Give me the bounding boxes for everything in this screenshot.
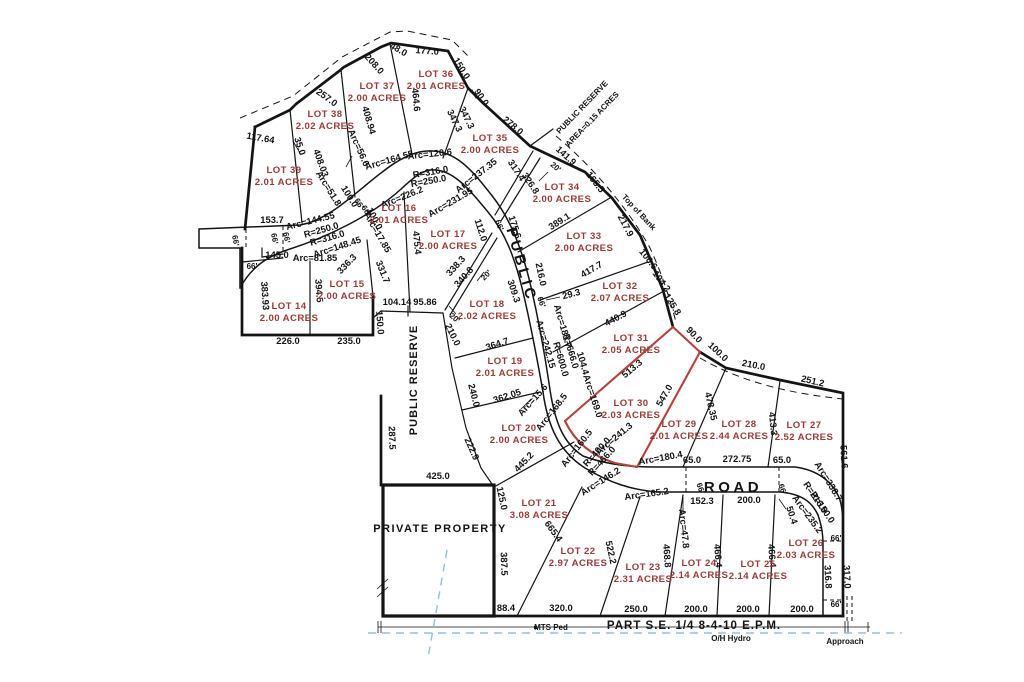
leader-line xyxy=(539,172,548,181)
reserve-wedge xyxy=(530,129,553,146)
dimension-label: 513.3 xyxy=(619,357,644,381)
lot-acres-label: 2.00 ACRES xyxy=(461,145,520,156)
dimension-label: 153.7 xyxy=(260,214,283,225)
plat-map-page: 48.0177.0208.0150.0257.0464.690.0347.334… xyxy=(0,0,1024,682)
lot-line xyxy=(367,240,373,296)
lot-number-label: LOT 17 xyxy=(431,229,466,240)
footer-label: O/H Hydro xyxy=(711,634,751,643)
dimension-label: 66' xyxy=(247,262,258,271)
lot-number-label: LOT 32 xyxy=(603,281,638,292)
lot-acres-label: 2.97 ACRES xyxy=(549,558,608,569)
dimension-label: 177.0 xyxy=(415,44,439,57)
dimension-label: 65.0 xyxy=(683,454,701,465)
footer-label: MTS Ped xyxy=(534,623,568,632)
dimension-label: Arc=180.4 xyxy=(637,448,684,467)
dimension-label: 112.0 xyxy=(473,217,491,242)
lot-acres-label: 2.05 ACRES xyxy=(602,345,661,356)
dimension-label: 240.0 xyxy=(466,382,482,407)
dimension-label: 389.1 xyxy=(546,210,572,232)
dimension-label: 29.3 xyxy=(561,286,581,301)
lot-number-label: LOT 16 xyxy=(382,203,417,214)
dimension-label: 150.0 xyxy=(451,55,473,81)
dimension-label: 106.6 xyxy=(637,246,660,271)
lot-acres-label: 2.00 ACRES xyxy=(490,435,549,446)
lot-number-label: LOT 39 xyxy=(267,165,302,176)
dimension-label: 257.0 xyxy=(314,86,339,109)
dimension-label: 364.7 xyxy=(484,335,510,353)
lot-number-label: LOT 34 xyxy=(545,182,580,193)
dimension-label: 383.93 xyxy=(259,281,272,310)
dimension-label: 408.94 xyxy=(360,105,379,136)
lot-number-label: LOT 27 xyxy=(787,420,822,431)
lot-acres-label: 2.14 ACRES xyxy=(670,570,729,581)
lot-acres-label: 2.00 ACRES xyxy=(260,313,319,324)
approach-marker xyxy=(847,596,852,624)
dimension-label: Arc=47.8 xyxy=(677,508,692,548)
lot-number-label: LOT 29 xyxy=(662,419,697,430)
hydro-line xyxy=(428,550,447,658)
dimension-label: 95.86 xyxy=(413,296,436,307)
lot-acres-label: 2.07 ACRES xyxy=(591,293,650,304)
dimension-label: 210.0 xyxy=(741,357,766,372)
lot-acres-label: 2.01 ACRES xyxy=(476,368,535,379)
lot-acres-label: 2.00 ACRES xyxy=(348,93,407,104)
lot-number-label: LOT 33 xyxy=(567,231,602,242)
dimension-label: 145.0 xyxy=(265,249,288,260)
lot-acres-label: 2.01 ACRES xyxy=(255,177,314,188)
lot-number-label: LOT 28 xyxy=(722,419,757,430)
dimension-label: 104.2 xyxy=(650,268,673,293)
dimension-label: 152.3 xyxy=(690,495,713,506)
dimension-label: 104.14 xyxy=(383,296,412,307)
lot-number-label: LOT 14 xyxy=(272,301,307,312)
dimension-label: 235.0 xyxy=(337,335,360,346)
dimension-label: 20' xyxy=(479,268,493,282)
dimension-label: 440.9 xyxy=(602,308,628,329)
dimension-label: 66' xyxy=(230,234,241,246)
dimension-label: 425.0 xyxy=(426,470,449,481)
dimension-label: 200.0 xyxy=(684,603,707,614)
plat-map: 48.0177.0208.0150.0257.0464.690.0347.334… xyxy=(0,0,1024,682)
lot-number-label: LOT 15 xyxy=(330,279,365,290)
dimension-label: 48.0 xyxy=(388,40,409,59)
lot-number-label: LOT 20 xyxy=(502,423,537,434)
dimension-label: 561.6 xyxy=(838,445,850,469)
dimension-label: 222.9 xyxy=(462,436,482,462)
lot-acres-label: 3.08 ACRES xyxy=(510,510,569,521)
dimension-label: 66' xyxy=(776,483,788,496)
dimension-label: 468.8 xyxy=(661,544,674,568)
dimension-label: 417.7 xyxy=(578,258,604,279)
dimension-label: 125.0 xyxy=(495,486,511,511)
lot-number-label: LOT 35 xyxy=(473,133,508,144)
dimension-label: 331.7 xyxy=(374,259,393,285)
dimension-label: 66' xyxy=(831,600,842,609)
dimension-label: 125.8 xyxy=(662,291,684,317)
mts-ped-marker xyxy=(534,626,537,629)
dimension-label: 336.3 xyxy=(334,251,358,276)
lot-acres-label: 2.44 ACRES xyxy=(710,431,769,442)
lot-acres-label: 2.01 ACRES xyxy=(650,431,709,442)
subdivision-boundary xyxy=(245,127,255,229)
lot-number-label: LOT 22 xyxy=(561,546,596,557)
dimension-label: Arc=81.85 xyxy=(293,252,338,263)
lot-number-label: LOT 19 xyxy=(488,356,523,367)
dimension-label: 150.0 xyxy=(374,311,387,335)
lot-acres-label: 2.00 ACRES xyxy=(555,243,614,254)
dimension-label: 217.9 xyxy=(616,212,637,238)
dimension-label: 88.4 xyxy=(497,602,516,613)
area-label: PRIVATE PROPERTY xyxy=(373,523,507,535)
lot-number-label: LOT 31 xyxy=(614,333,649,344)
dimension-label: 117.64 xyxy=(246,130,276,146)
dimension-label: 66' xyxy=(281,231,292,243)
dimension-label: 100.0 xyxy=(706,339,731,363)
dimension-label: 66' xyxy=(831,534,842,543)
lot-line xyxy=(600,497,640,616)
dimension-label: 66' xyxy=(269,232,280,244)
lot-number-label: LOT 24 xyxy=(682,558,717,569)
dimension-label: 250.0 xyxy=(624,603,647,614)
lot-number-label: LOT 38 xyxy=(308,109,343,120)
dimension-label: Arc=120.6 xyxy=(407,146,452,162)
lot-acres-label: 2.00 ACRES xyxy=(318,291,377,302)
dimension-label: 65.0 xyxy=(773,454,791,465)
dimension-label: 287.5 xyxy=(387,426,399,450)
dimension-label: 90.0 xyxy=(684,324,705,345)
lot-number-label: LOT 36 xyxy=(419,69,454,80)
footer-label: PART S.E. 1/4 8-4-10 E.P.M. xyxy=(607,620,781,632)
lot-acres-label: 2.31 ACRES xyxy=(614,574,673,585)
dimension-label: 665.4 xyxy=(542,518,565,544)
lot-number-label: LOT 30 xyxy=(614,398,649,409)
dimension-label: 320.0 xyxy=(549,602,572,613)
lot-acres-label: 2.00 ACRES xyxy=(419,241,478,252)
lot-acres-label: 2.01 ACRES xyxy=(370,215,429,226)
dimension-label: 326.8 xyxy=(520,170,542,196)
lot-number-label: LOT 23 xyxy=(626,562,661,573)
lot-acres-label: 2.00 ACRES xyxy=(533,194,592,205)
lot-number-label: LOT 25 xyxy=(741,559,776,570)
dimension-label: 200.0 xyxy=(736,603,759,614)
lot-acres-label: 2.14 ACRES xyxy=(729,571,788,582)
road-name-label: ROAD xyxy=(704,479,762,496)
lot-number-label: LOT 18 xyxy=(470,299,505,310)
lot-acres-label: 2.02 ACRES xyxy=(296,121,355,132)
dimension-label: 208.0 xyxy=(363,51,387,76)
lot-acres-label: 2.03 ACRES xyxy=(777,550,836,561)
lot-acres-label: 2.02 ACRES xyxy=(458,311,517,322)
lot-number-label: LOT 37 xyxy=(360,81,395,92)
lot-acres-label: 2.03 ACRES xyxy=(602,410,661,421)
dimension-label: 272.75 xyxy=(723,453,752,464)
footer-label: Approach xyxy=(826,637,863,646)
lot-number-label: LOT 21 xyxy=(522,498,557,509)
dimension-label: 200.0 xyxy=(790,603,813,614)
area-label: PUBLIC RESERVE xyxy=(408,325,420,435)
lot-acres-label: 2.52 ACRES xyxy=(775,432,834,443)
dimension-label: 316.8 xyxy=(822,565,834,589)
dimension-label: Arc=231.95 xyxy=(426,185,475,219)
lot-acres-label: 2.01 ACRES xyxy=(407,81,466,92)
dimension-label: 226.0 xyxy=(276,335,299,346)
dimension-label: 317.0 xyxy=(841,565,853,589)
dimension-label: 362.05 xyxy=(492,386,523,405)
dimension-label: 387.5 xyxy=(499,552,511,576)
lot-number-label: LOT 26 xyxy=(789,538,824,549)
dimension-label: 20' xyxy=(549,160,563,174)
